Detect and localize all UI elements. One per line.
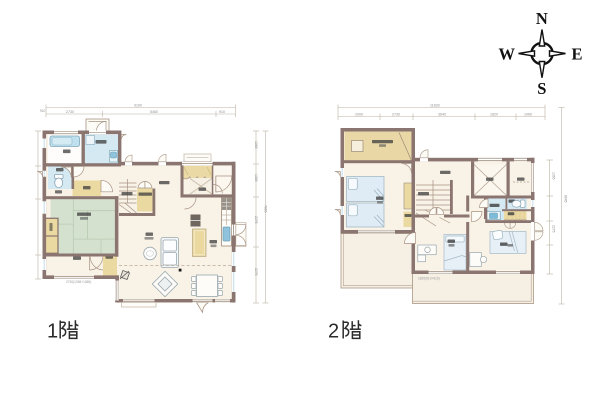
svg-text:9100: 9100 bbox=[134, 103, 142, 107]
svg-text:W: W bbox=[499, 44, 516, 63]
svg-text:N: N bbox=[536, 9, 548, 28]
svg-text:7865: 7865 bbox=[263, 205, 267, 213]
svg-text:E: E bbox=[571, 44, 582, 63]
svg-text:2275: 2275 bbox=[552, 225, 556, 233]
svg-text:1060: 1060 bbox=[524, 112, 532, 116]
svg-text:1365: 1365 bbox=[254, 141, 258, 149]
svg-text:2275: 2275 bbox=[254, 268, 258, 276]
svg-text:1820(910+910): 1820(910+910) bbox=[418, 277, 440, 281]
svg-text:1365: 1365 bbox=[552, 172, 556, 180]
svg-text:1820: 1820 bbox=[490, 112, 498, 116]
svg-text:2730: 2730 bbox=[392, 112, 400, 116]
svg-text:2730: 2730 bbox=[66, 110, 74, 114]
svg-text:910: 910 bbox=[219, 110, 225, 114]
svg-text:1365: 1365 bbox=[254, 174, 258, 182]
svg-text:910: 910 bbox=[40, 109, 46, 113]
svg-text:2000: 2000 bbox=[355, 112, 363, 116]
svg-text:11830: 11830 bbox=[430, 103, 440, 107]
svg-text:2730(1365+1365): 2730(1365+1365) bbox=[66, 280, 91, 284]
svg-text:1: 1 bbox=[47, 321, 58, 343]
svg-text:S: S bbox=[537, 79, 546, 98]
svg-text:8645: 8645 bbox=[564, 195, 568, 203]
svg-text:5460: 5460 bbox=[150, 110, 158, 114]
svg-text:2275: 2275 bbox=[254, 216, 258, 224]
svg-text:2: 2 bbox=[328, 321, 339, 343]
svg-text:3640: 3640 bbox=[438, 112, 446, 116]
